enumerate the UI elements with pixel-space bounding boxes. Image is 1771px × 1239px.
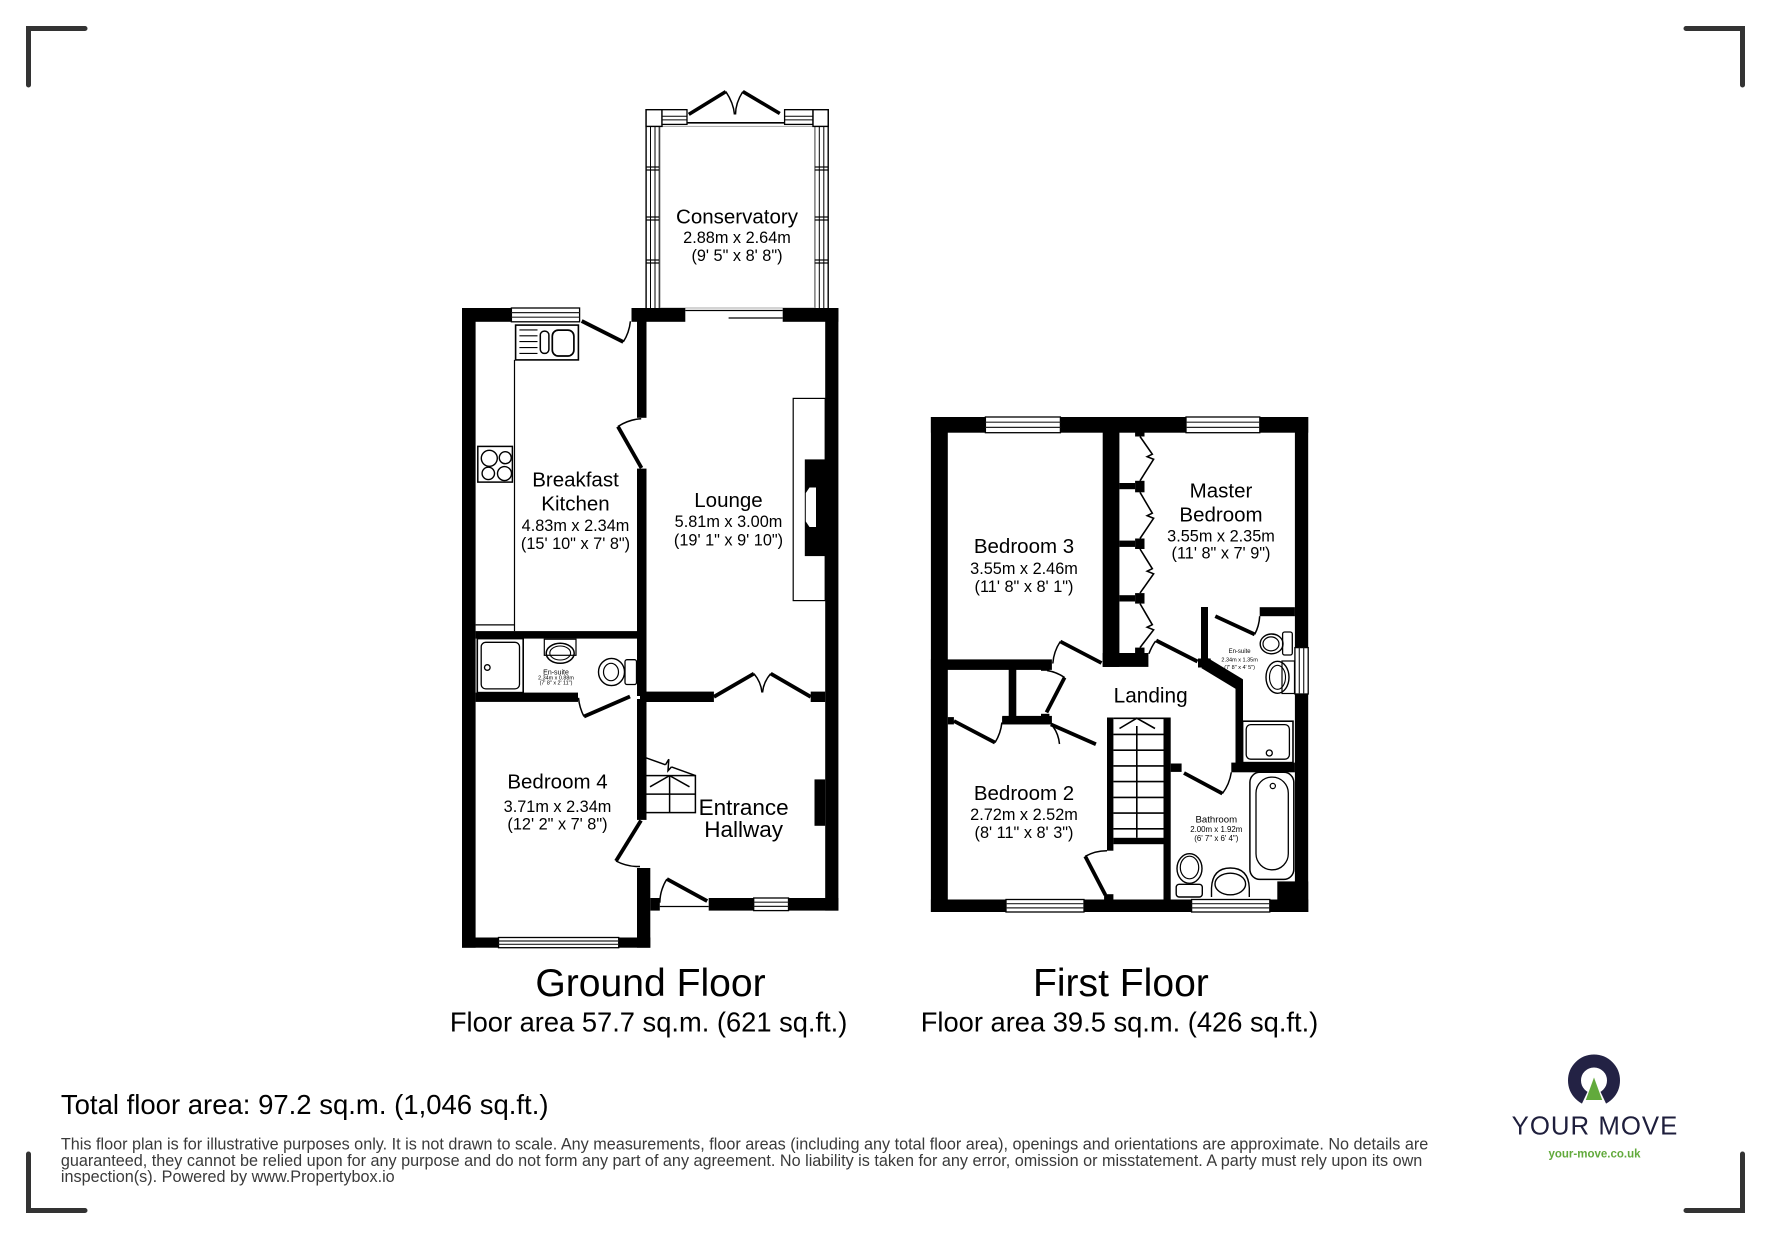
svg-text:(11' 8" x 8' 1"): (11' 8" x 8' 1") <box>975 578 1074 596</box>
svg-text:Conservatory: Conservatory <box>676 205 799 228</box>
svg-text:2.00m x 1.92m: 2.00m x 1.92m <box>1190 825 1243 834</box>
svg-text:(7' 8" x 4' 5"): (7' 8" x 4' 5") <box>1224 665 1255 671</box>
svg-text:5.81m x 3.00m: 5.81m x 3.00m <box>675 513 783 531</box>
svg-text:2.88m x 2.64m: 2.88m x 2.64m <box>683 229 791 247</box>
svg-text:This floor plan is for illustr: This floor plan is for illustrative purp… <box>61 1136 1428 1154</box>
svg-text:(7' 8" x 2' 11"): (7' 8" x 2' 11") <box>540 681 573 687</box>
svg-text:Bathroom: Bathroom <box>1196 815 1238 826</box>
svg-text:Master: Master <box>1190 479 1253 502</box>
svg-text:Floor area 57.7 sq.m. (621 sq.: Floor area 57.7 sq.m. (621 sq.ft.) <box>450 1007 848 1038</box>
svg-text:(15' 10" x 7' 8"): (15' 10" x 7' 8") <box>521 535 630 553</box>
svg-text:Ground Floor: Ground Floor <box>535 962 765 1005</box>
svg-text:(8' 11" x 8' 3"): (8' 11" x 8' 3") <box>975 824 1074 842</box>
svg-text:3.55m x 2.35m: 3.55m x 2.35m <box>1167 527 1275 545</box>
svg-text:Bedroom: Bedroom <box>1179 504 1262 527</box>
svg-text:Total floor area: 97.2 sq.m. (: Total floor area: 97.2 sq.m. (1,046 sq.f… <box>61 1089 549 1120</box>
svg-text:Bedroom 4: Bedroom 4 <box>507 771 607 794</box>
svg-text:(19' 1" x 9' 10"): (19' 1" x 9' 10") <box>674 532 783 550</box>
svg-text:(6' 7" x 6' 4"): (6' 7" x 6' 4") <box>1194 834 1239 843</box>
svg-text:Bedroom 2: Bedroom 2 <box>974 782 1074 805</box>
svg-text:En-suite: En-suite <box>1229 649 1252 655</box>
svg-text:Hallway: Hallway <box>704 817 784 842</box>
svg-text:Bedroom 3: Bedroom 3 <box>974 535 1074 558</box>
svg-text:Lounge: Lounge <box>694 489 762 512</box>
svg-text:YOUR MOVE: YOUR MOVE <box>1512 1113 1679 1141</box>
svg-text:First Floor: First Floor <box>1033 962 1209 1005</box>
svg-text:Kitchen: Kitchen <box>541 493 609 516</box>
svg-text:Landing: Landing <box>1114 684 1188 707</box>
svg-text:(12' 2" x 7' 8"): (12' 2" x 7' 8") <box>507 816 607 834</box>
svg-text:your-move.co.uk: your-move.co.uk <box>1548 1149 1641 1161</box>
svg-text:Breakfast: Breakfast <box>532 469 619 492</box>
svg-text:inspection(s). Powered by www.: inspection(s). Powered by www.Propertybo… <box>61 1168 395 1186</box>
svg-text:(9' 5" x 8' 8"): (9' 5" x 8' 8") <box>691 247 782 265</box>
svg-text:4.83m x 2.34m: 4.83m x 2.34m <box>522 517 630 535</box>
svg-text:3.55m x 2.46m: 3.55m x 2.46m <box>970 560 1078 578</box>
svg-text:(11' 8" x 7' 9"): (11' 8" x 7' 9") <box>1172 545 1271 563</box>
svg-text:Floor area 39.5 sq.m. (426 sq.: Floor area 39.5 sq.m. (426 sq.ft.) <box>921 1007 1319 1038</box>
svg-text:3.71m x 2.34m: 3.71m x 2.34m <box>504 798 612 816</box>
svg-text:2.72m x 2.52m: 2.72m x 2.52m <box>970 806 1078 824</box>
svg-text:2.34m x 1.35m: 2.34m x 1.35m <box>1221 658 1258 664</box>
